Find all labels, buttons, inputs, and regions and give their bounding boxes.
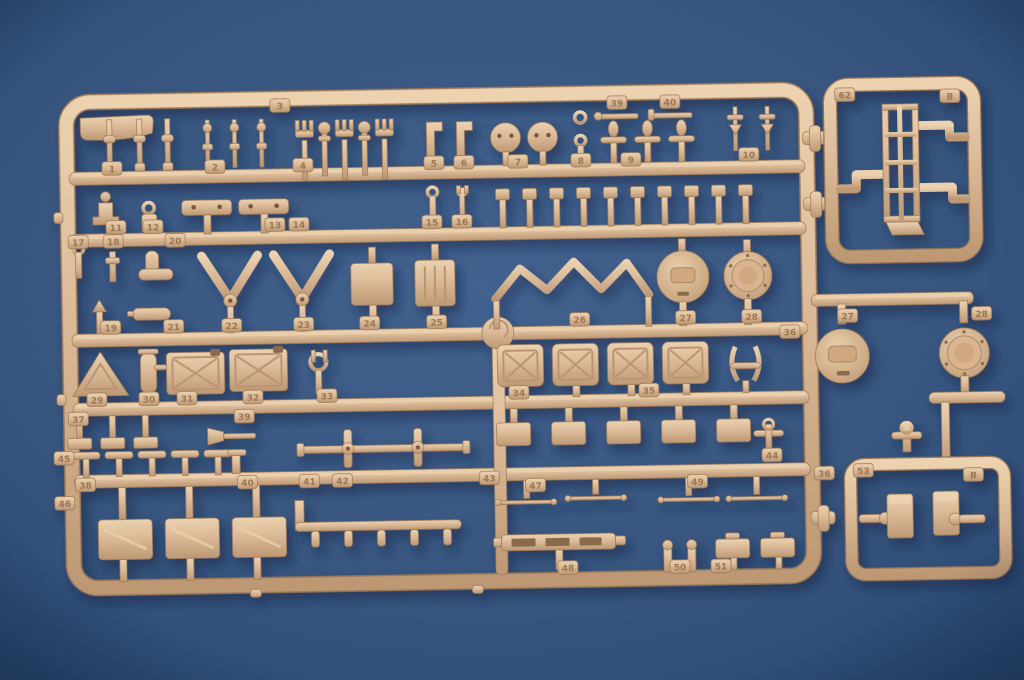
sprue-photo: Photograph of a tan injection-molded pla… — [0, 0, 1024, 680]
vignette-overlay — [0, 0, 1024, 680]
sprue-photo-svg: 1234567891039401112131415161718201921222… — [0, 0, 1024, 680]
